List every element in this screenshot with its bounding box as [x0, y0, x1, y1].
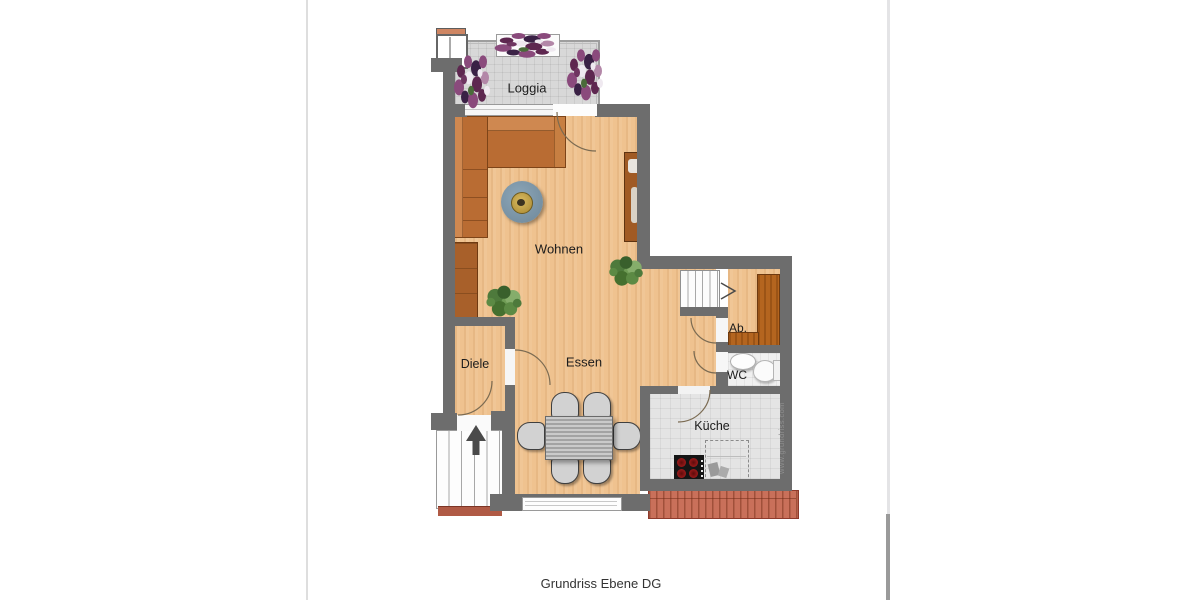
window-pane-line — [525, 501, 617, 502]
room-label-diele: Diele — [461, 357, 490, 371]
wall-living-right — [637, 104, 650, 268]
dining-chair — [551, 456, 579, 484]
dining-window — [522, 497, 622, 511]
dining-chair — [517, 422, 545, 450]
cabinet-left — [452, 242, 478, 320]
burner — [677, 458, 686, 467]
wall-wc-top — [728, 345, 780, 353]
wall-kitchen-bottom — [640, 479, 792, 491]
wall-top-left — [443, 104, 467, 117]
plan-caption: Grundriss Ebene DG — [441, 576, 761, 591]
door-opening-loggia — [553, 104, 597, 116]
kitchen-counter — [705, 440, 749, 482]
floorplan-page: Loggia Wohnen Diele Essen Ab. WC Küche w… — [0, 0, 1200, 600]
window-pane-line — [525, 505, 617, 506]
burner — [689, 469, 698, 478]
watermark-text: www.grundriss.com — [777, 396, 786, 474]
sofa-armrest-right — [554, 117, 565, 167]
dining-table — [545, 416, 613, 460]
wall-kitchen-left — [640, 386, 650, 491]
wall-left — [443, 64, 455, 430]
roof-strip-line — [649, 498, 796, 499]
burner — [689, 458, 698, 467]
wall-kitchen-top-a — [650, 386, 678, 394]
sofa-vertical — [452, 116, 488, 238]
dining-chair — [583, 456, 611, 484]
wall-entry-left-block — [431, 413, 457, 430]
scrollbar-thumb[interactable] — [886, 514, 890, 600]
room-label-wc: WC — [727, 368, 747, 382]
kitchen-faucet — [718, 466, 730, 478]
door-opening-kitchen — [678, 386, 710, 394]
dining-chair — [613, 422, 641, 450]
stairs-upper — [680, 270, 720, 309]
room-label-kueche: Küche — [694, 419, 729, 433]
burner — [677, 469, 686, 478]
counter-line — [707, 456, 746, 457]
page-edge-left — [306, 0, 308, 600]
coffee-table — [511, 192, 533, 214]
flower-box — [496, 34, 560, 57]
door-opening-diele — [505, 349, 515, 385]
page-edge-right — [887, 0, 890, 600]
door-opening-storage — [716, 318, 728, 342]
wall-wing-top — [637, 256, 792, 269]
stove-knobs — [701, 459, 703, 477]
room-label-wohnen: Wohnen — [535, 242, 583, 257]
stove — [674, 455, 704, 481]
coffee-table-decor — [517, 199, 525, 206]
entry-landing — [457, 415, 491, 431]
room-label-essen: Essen — [566, 355, 602, 370]
room-label-abstellraum: Ab. — [729, 321, 747, 335]
roof-strip-kitchen — [648, 490, 799, 519]
wardrobe-storage-vertical — [757, 274, 780, 348]
wall-entry-right-block — [491, 411, 515, 430]
room-label-loggia: Loggia — [507, 81, 546, 96]
